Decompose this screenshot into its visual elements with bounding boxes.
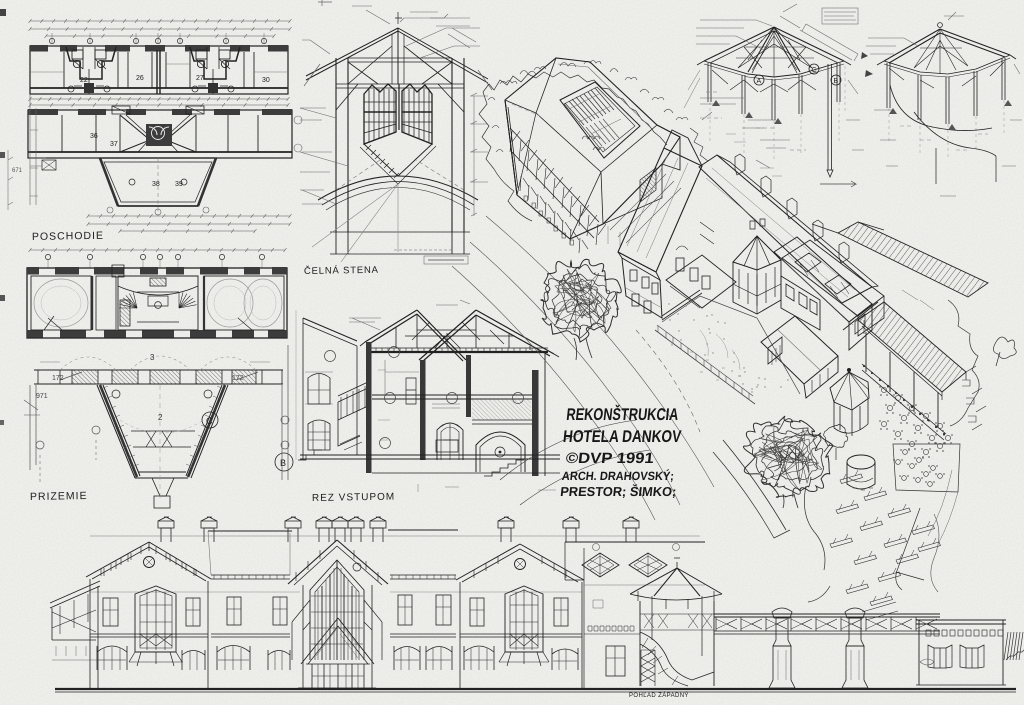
svg-text:ARCH. DRAHOVSKÝ;: ARCH. DRAHOVSKÝ; [561,468,675,483]
svg-text:A: A [757,78,762,85]
svg-text:38: 38 [152,181,160,188]
svg-text:971: 971 [36,393,48,400]
svg-text:37: 37 [110,141,118,148]
svg-text:3: 3 [150,353,155,362]
svg-text:27: 27 [196,75,204,82]
svg-text:C: C [812,67,817,74]
svg-text:36: 36 [90,133,98,140]
svg-text:671: 671 [12,168,23,174]
svg-text:PRIZEMIE: PRIZEMIE [30,490,88,503]
svg-text:REKONŠTRUKCIA: REKONŠTRUKCIA [565,405,679,424]
svg-text:REZ VSTUPOM: REZ VSTUPOM [312,492,395,504]
svg-text:39: 39 [175,181,183,188]
svg-text:POHĽAD ZÁPADNÝ: POHĽAD ZÁPADNÝ [629,692,689,699]
svg-text:PRESTOR; ŠIMKO;: PRESTOR; ŠIMKO; [560,484,678,499]
svg-text:C: C [206,416,213,426]
svg-text:22: 22 [80,77,88,84]
svg-text:B: B [834,78,839,85]
svg-text:©DVP 1991: ©DVP 1991 [565,450,655,467]
svg-text:2: 2 [158,413,163,422]
svg-text:172: 172 [232,375,244,382]
svg-text:HOTELA DANKOV: HOTELA DANKOV [562,427,682,446]
svg-text:26: 26 [136,75,144,82]
svg-text:30: 30 [262,77,270,84]
svg-text:172: 172 [52,375,64,382]
svg-text:B: B [280,458,286,468]
svg-text:POSCHODIE: POSCHODIE [32,230,104,243]
svg-text:ČELNÁ STENA: ČELNÁ STENA [304,265,379,277]
